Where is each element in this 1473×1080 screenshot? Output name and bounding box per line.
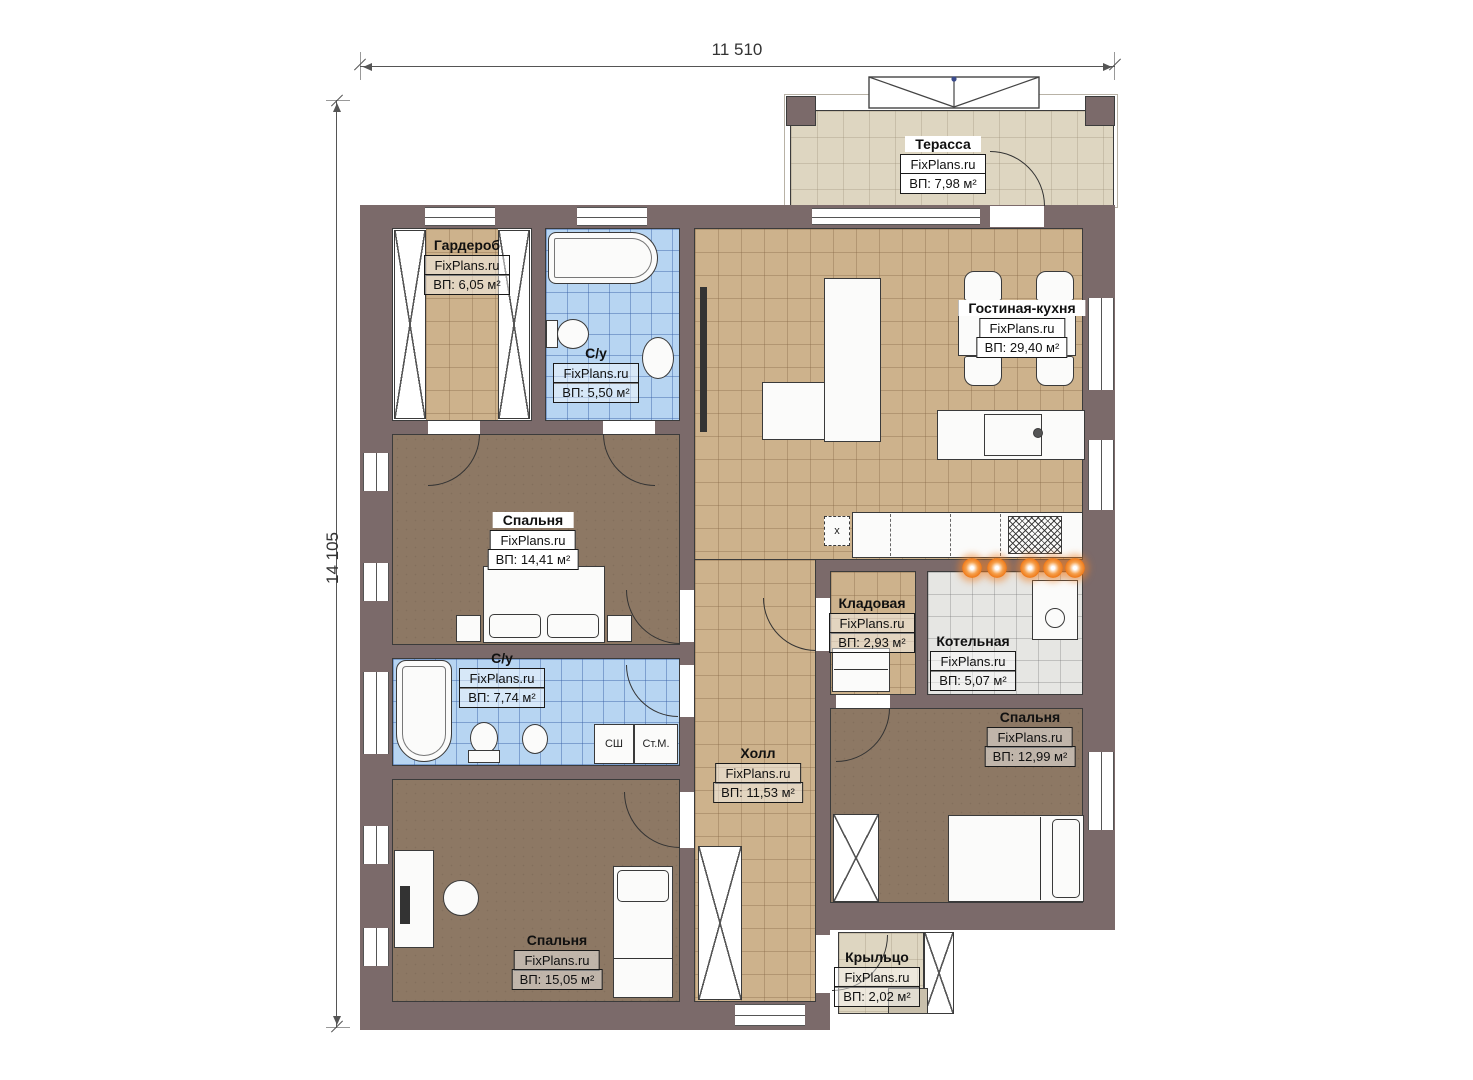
sofa-chaise-section: [762, 382, 825, 440]
room-title: Крыльцо: [845, 949, 909, 965]
hall-closet: [698, 846, 742, 1000]
room-area: ВП: 15,05 м²: [512, 969, 603, 990]
dining-chair: [964, 271, 1002, 301]
room-area: ВП: 2,02 м²: [834, 986, 920, 1007]
nightstand: [607, 615, 632, 642]
counter-divider: [1000, 514, 1001, 556]
room-label-hall: Холл FixPlans.ru ВП: 11,53 м²: [713, 745, 803, 803]
door-opening: [816, 935, 830, 993]
terrace-post: [786, 96, 816, 126]
room-title: Холл: [740, 745, 775, 761]
room-brand: FixPlans.ru: [553, 363, 639, 384]
window: [363, 826, 389, 864]
desk-chair: [443, 880, 479, 916]
room-brand: FixPlans.ru: [459, 668, 545, 689]
room-title: С/у: [491, 650, 513, 666]
room-label-boiler-room: Котельная FixPlans.ru ВП: 5,07 м²: [930, 633, 1016, 691]
vent-shaft: х: [824, 516, 850, 546]
pillow: [1052, 819, 1080, 898]
blanket-line: [1040, 817, 1041, 900]
radiator-pipe: [1043, 558, 1063, 578]
living-kitchen-floor: [694, 228, 1083, 560]
dimension-label-left: 14 105: [323, 508, 343, 608]
washing-machine: Ст.М.: [634, 724, 678, 764]
dimension-line-top: [360, 66, 1115, 67]
counter-divider: [890, 514, 891, 556]
room-title: Терасса: [905, 136, 981, 152]
room-area: ВП: 7,98 м²: [900, 173, 986, 194]
room-area: ВП: 5,50 м²: [553, 382, 639, 403]
room-title: Спальня: [1000, 709, 1060, 725]
room-title: Гардероб: [434, 237, 500, 253]
room-area: ВП: 29,40 м²: [977, 337, 1068, 358]
window: [363, 563, 389, 601]
room-title: С/у: [585, 345, 607, 361]
room-brand: FixPlans.ru: [930, 651, 1016, 672]
room-brand: FixPlans.ru: [514, 950, 600, 971]
wall-outer-left: [360, 205, 392, 1030]
wall-pantry-boiler: [916, 571, 927, 695]
room-brand: FixPlans.ru: [424, 255, 510, 276]
door-opening: [836, 695, 890, 708]
room-brand: FixPlans.ru: [490, 530, 576, 551]
room-area: ВП: 2,93 м²: [829, 632, 915, 653]
room-brand: FixPlans.ru: [715, 763, 801, 784]
room-brand: FixPlans.ru: [900, 154, 986, 175]
room-brand: FixPlans.ru: [829, 613, 915, 634]
room-label-bathroom-top: С/у FixPlans.ru ВП: 5,50 м²: [553, 345, 639, 403]
room-label-bedroom-east: Спальня FixPlans.ru ВП: 12,99 м²: [985, 709, 1076, 767]
room-title: Спальня: [493, 512, 573, 528]
room-area: ВП: 14,41 м²: [488, 549, 579, 570]
stove: [1008, 516, 1062, 554]
window: [425, 207, 495, 226]
window: [577, 207, 647, 226]
dining-chair: [1036, 271, 1074, 301]
window: [812, 208, 980, 225]
blanket-line: [614, 958, 672, 959]
pergola-awning: [868, 76, 1040, 110]
door-opening: [680, 665, 694, 717]
wardrobe-closet: [833, 814, 879, 902]
window: [363, 453, 389, 491]
window: [1088, 440, 1114, 510]
door-opening: [990, 206, 1044, 227]
room-area: ВП: 11,53 м²: [713, 782, 803, 803]
nightstand: [456, 615, 481, 642]
sofa-long-section: [824, 278, 881, 442]
door-opening: [428, 421, 480, 434]
door-opening: [603, 421, 655, 434]
room-title: Гостиная-кухня: [958, 300, 1085, 316]
bathtub: [548, 232, 658, 284]
terrace-post: [1085, 96, 1115, 126]
room-label-living-kitchen: Гостиная-кухня FixPlans.ru ВП: 29,40 м²: [958, 300, 1085, 358]
wall-wardrobe-bath: [532, 228, 545, 421]
room-brand: FixPlans.ru: [834, 967, 920, 988]
hall-back-door: [735, 1004, 805, 1026]
radiator-pipe: [987, 558, 1007, 578]
pillow: [547, 614, 599, 638]
room-area: ВП: 5,07 м²: [930, 670, 1016, 691]
radiator-pipe: [1065, 558, 1085, 578]
door-opening: [816, 598, 830, 651]
room-brand: FixPlans.ru: [979, 318, 1065, 339]
pillow: [489, 614, 541, 638]
toilet-tank: [468, 750, 500, 763]
monitor: [400, 886, 410, 924]
shelf-line: [834, 669, 888, 670]
room-area: ВП: 12,99 м²: [985, 746, 1076, 767]
counter-divider: [950, 514, 951, 556]
window: [363, 672, 389, 754]
room-brand: FixPlans.ru: [987, 727, 1073, 748]
room-label-porch: Крыльцо FixPlans.ru ВП: 2,02 м²: [834, 949, 920, 1007]
room-label-bedroom-south: Спальня FixPlans.ru ВП: 15,05 м²: [512, 932, 603, 990]
room-area: ВП: 7,74 м²: [459, 687, 545, 708]
room-label-terrace: Терасса FixPlans.ru ВП: 7,98 м²: [900, 136, 986, 194]
sink: [642, 337, 674, 379]
room-label-bathroom-mid: С/у FixPlans.ru ВП: 7,74 м²: [459, 650, 545, 708]
dimension-label-top: 11 510: [687, 40, 787, 60]
radiator-pipe: [962, 558, 982, 578]
boiler-dial: [1045, 608, 1065, 628]
door-opening: [680, 792, 694, 848]
wall-row-3: [392, 766, 680, 779]
room-title: Спальня: [527, 932, 587, 948]
room-title: Котельная: [936, 633, 1009, 649]
window: [1088, 752, 1114, 830]
pillow: [617, 870, 669, 902]
bathtub: [396, 660, 452, 762]
faucet: [1033, 428, 1043, 438]
room-title: Кладовая: [838, 595, 905, 611]
radiator-pipe: [1020, 558, 1040, 578]
room-label-pantry: Кладовая FixPlans.ru ВП: 2,93 м²: [829, 595, 915, 653]
floor-plan-canvas: 11 510 14 105: [0, 0, 1473, 1080]
room-label-bedroom-west: Спальня FixPlans.ru ВП: 14,41 м²: [488, 512, 579, 570]
room-area: ВП: 6,05 м²: [424, 274, 510, 295]
bidet: [522, 724, 548, 754]
room-label-wardrobe: Гардероб FixPlans.ru ВП: 6,05 м²: [424, 237, 510, 295]
tv-panel: [700, 287, 707, 432]
wardrobe-closet: [394, 230, 426, 419]
window: [1088, 298, 1114, 390]
shower-cabin: СШ: [594, 724, 634, 764]
door-opening: [680, 590, 694, 642]
dining-chair: [1036, 356, 1074, 386]
dining-chair: [964, 356, 1002, 386]
window: [363, 928, 389, 966]
porch-steps: [924, 932, 954, 1014]
wall-bedroom-east-south: [816, 903, 1115, 930]
